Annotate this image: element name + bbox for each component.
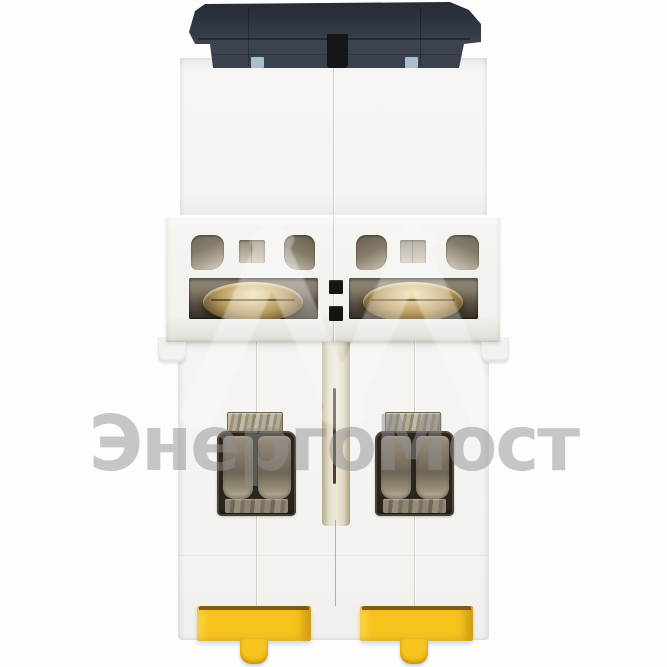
center-vent-hole-top [329, 280, 343, 294]
vent-window [446, 235, 479, 270]
center-groove-line [333, 388, 336, 484]
clamp-base [383, 499, 446, 513]
screw-window-right [349, 278, 478, 319]
vent-window [239, 240, 265, 263]
clip-shadow-line [362, 606, 471, 610]
vent-window [191, 235, 224, 270]
din-clip-stem-left [240, 639, 268, 664]
terminal-clamp-right [375, 431, 454, 516]
vent-window [284, 235, 315, 270]
clamp-lobe [258, 436, 291, 499]
vent-window [400, 240, 426, 263]
housing-step-line [178, 555, 489, 558]
screw-slot [371, 299, 455, 301]
center-groove-seam [335, 520, 336, 606]
screw-slot [211, 299, 295, 301]
terminal-clamp-left [217, 431, 296, 516]
cap-seam [420, 8, 421, 66]
vent-divider [412, 240, 413, 263]
screw-window-left [189, 278, 318, 319]
din-clip-left [197, 606, 311, 641]
breaker-top-cap [188, 2, 481, 68]
pole-seam-center [333, 62, 334, 218]
mount-tab-left [251, 57, 264, 68]
din-clip-stem-right [400, 639, 428, 664]
cap-seam [248, 8, 249, 66]
cap-center-notch [327, 34, 348, 68]
clamp-base [225, 499, 288, 513]
center-vent-hole-bottom [329, 306, 343, 321]
clip-shadow-line [199, 606, 309, 610]
clamp-lobe [223, 436, 253, 499]
din-clip-right [360, 606, 473, 641]
vent-divider [251, 240, 252, 263]
mount-tab-right [405, 57, 418, 68]
clamp-lobe [416, 436, 449, 499]
center-groove [322, 334, 350, 526]
clamp-lobe [381, 436, 411, 499]
breaker-upper-housing [180, 58, 487, 218]
photo-stage: ЭнергоМост [0, 0, 667, 667]
vent-window [356, 235, 387, 270]
